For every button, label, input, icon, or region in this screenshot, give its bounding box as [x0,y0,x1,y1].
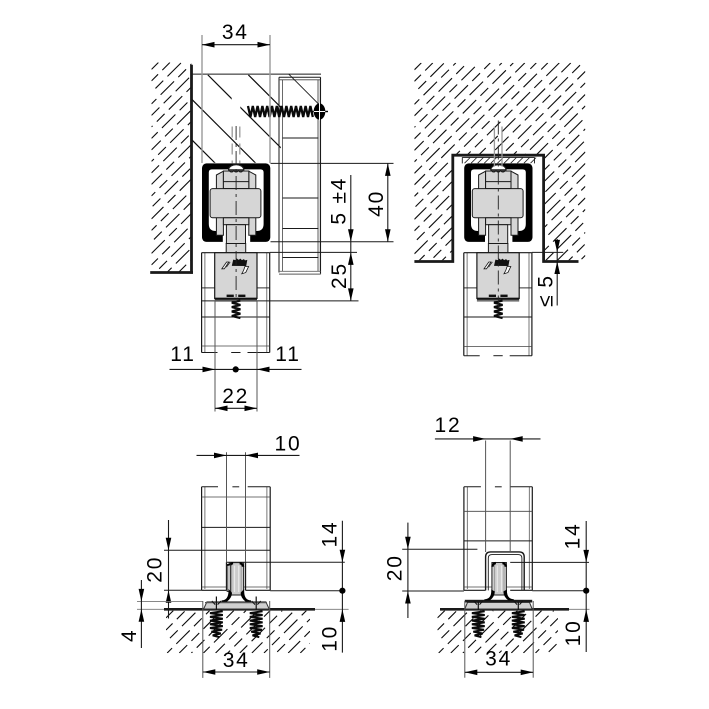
svg-text:20: 20 [384,554,407,581]
svg-text:11: 11 [275,343,300,366]
svg-text:11: 11 [170,343,195,366]
svg-text:≤ 5: ≤ 5 [535,275,558,307]
svg-text:12: 12 [435,414,462,437]
svg-text:20: 20 [143,556,166,583]
svg-text:40: 40 [365,190,388,217]
svg-text:4: 4 [118,629,141,642]
svg-text:5 ±4: 5 ±4 [328,177,351,225]
svg-text:34: 34 [223,649,250,672]
svg-text:10: 10 [318,625,341,652]
svg-text:14: 14 [318,521,341,548]
svg-text:34: 34 [222,21,249,44]
svg-text:10: 10 [275,432,302,455]
svg-text:10: 10 [562,619,585,646]
svg-text:25: 25 [328,262,351,289]
svg-text:34: 34 [485,648,512,671]
svg-text:14: 14 [561,522,584,549]
svg-text:22: 22 [222,385,249,408]
